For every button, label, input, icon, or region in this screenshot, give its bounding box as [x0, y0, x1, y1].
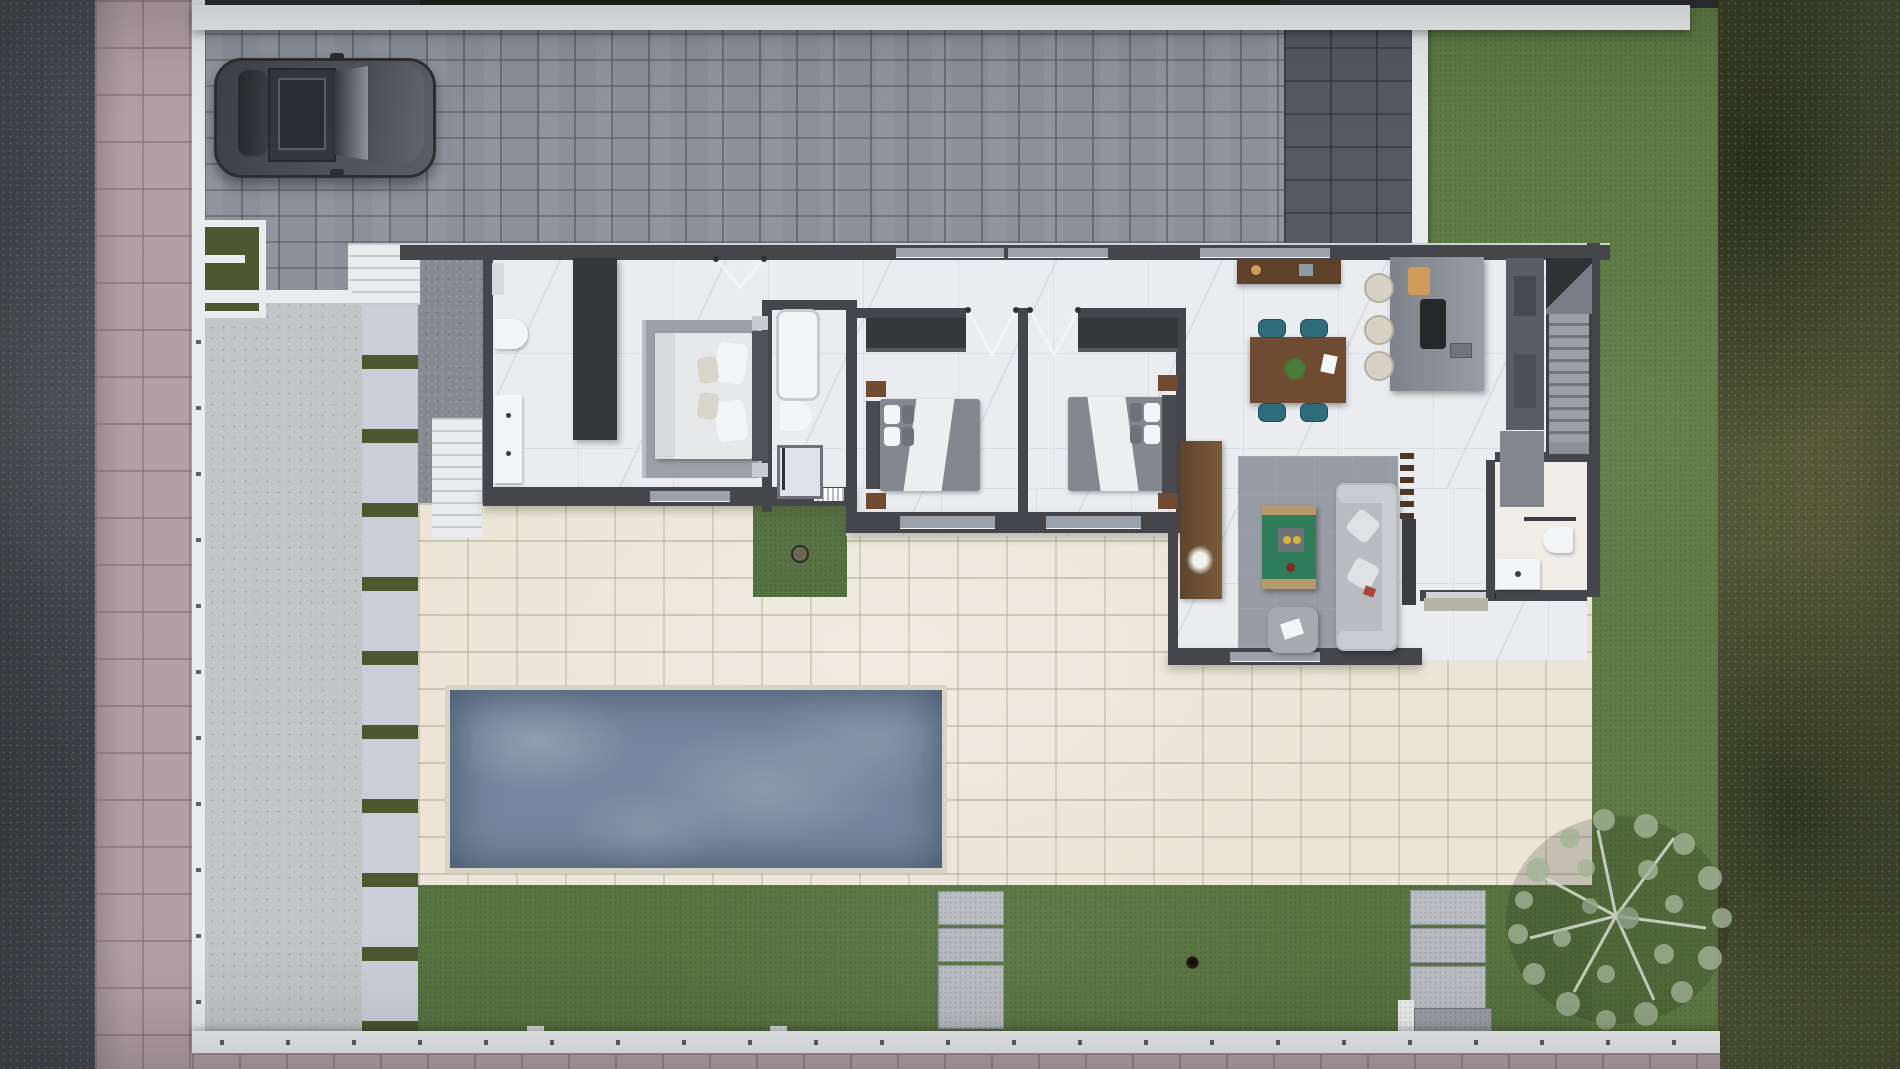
car-hood — [368, 62, 424, 164]
car-sunroof — [278, 78, 326, 150]
parking-pad-wall — [1412, 25, 1428, 249]
car-roof — [268, 68, 336, 162]
garden-tree — [1478, 778, 1754, 1054]
back-lawn — [418, 885, 1592, 1037]
entry-step — [1424, 598, 1488, 611]
gravel-side-court — [204, 295, 362, 1050]
perimeter-fence-bottom — [192, 1031, 1720, 1055]
putting-hole — [1186, 956, 1199, 969]
car-mirror — [330, 53, 344, 61]
lawn-paver — [1410, 928, 1486, 963]
parked-car — [214, 58, 430, 172]
car-windshield — [332, 66, 368, 160]
street-road — [0, 0, 95, 1069]
lawn-paver — [938, 965, 1004, 1029]
dark-parking-pad — [1284, 25, 1416, 247]
lawn-paver — [1410, 890, 1486, 925]
villa-site-plan-render — [0, 0, 1900, 1069]
fence-posts — [220, 1040, 1700, 1045]
lawn-paver — [938, 891, 1004, 925]
perimeter-wall-top — [192, 5, 1690, 30]
wall-segment — [192, 290, 352, 303]
car-mirror — [330, 169, 344, 177]
swimming-pool — [445, 685, 947, 873]
wall-posts — [196, 340, 201, 1040]
car-rear-window — [238, 70, 268, 156]
rear-sidewalk — [192, 1053, 1720, 1069]
lawn-paver — [938, 928, 1004, 962]
street-sidewalk — [95, 0, 192, 1069]
gate-bar — [199, 255, 245, 263]
perimeter-wall-left — [192, 0, 205, 1050]
